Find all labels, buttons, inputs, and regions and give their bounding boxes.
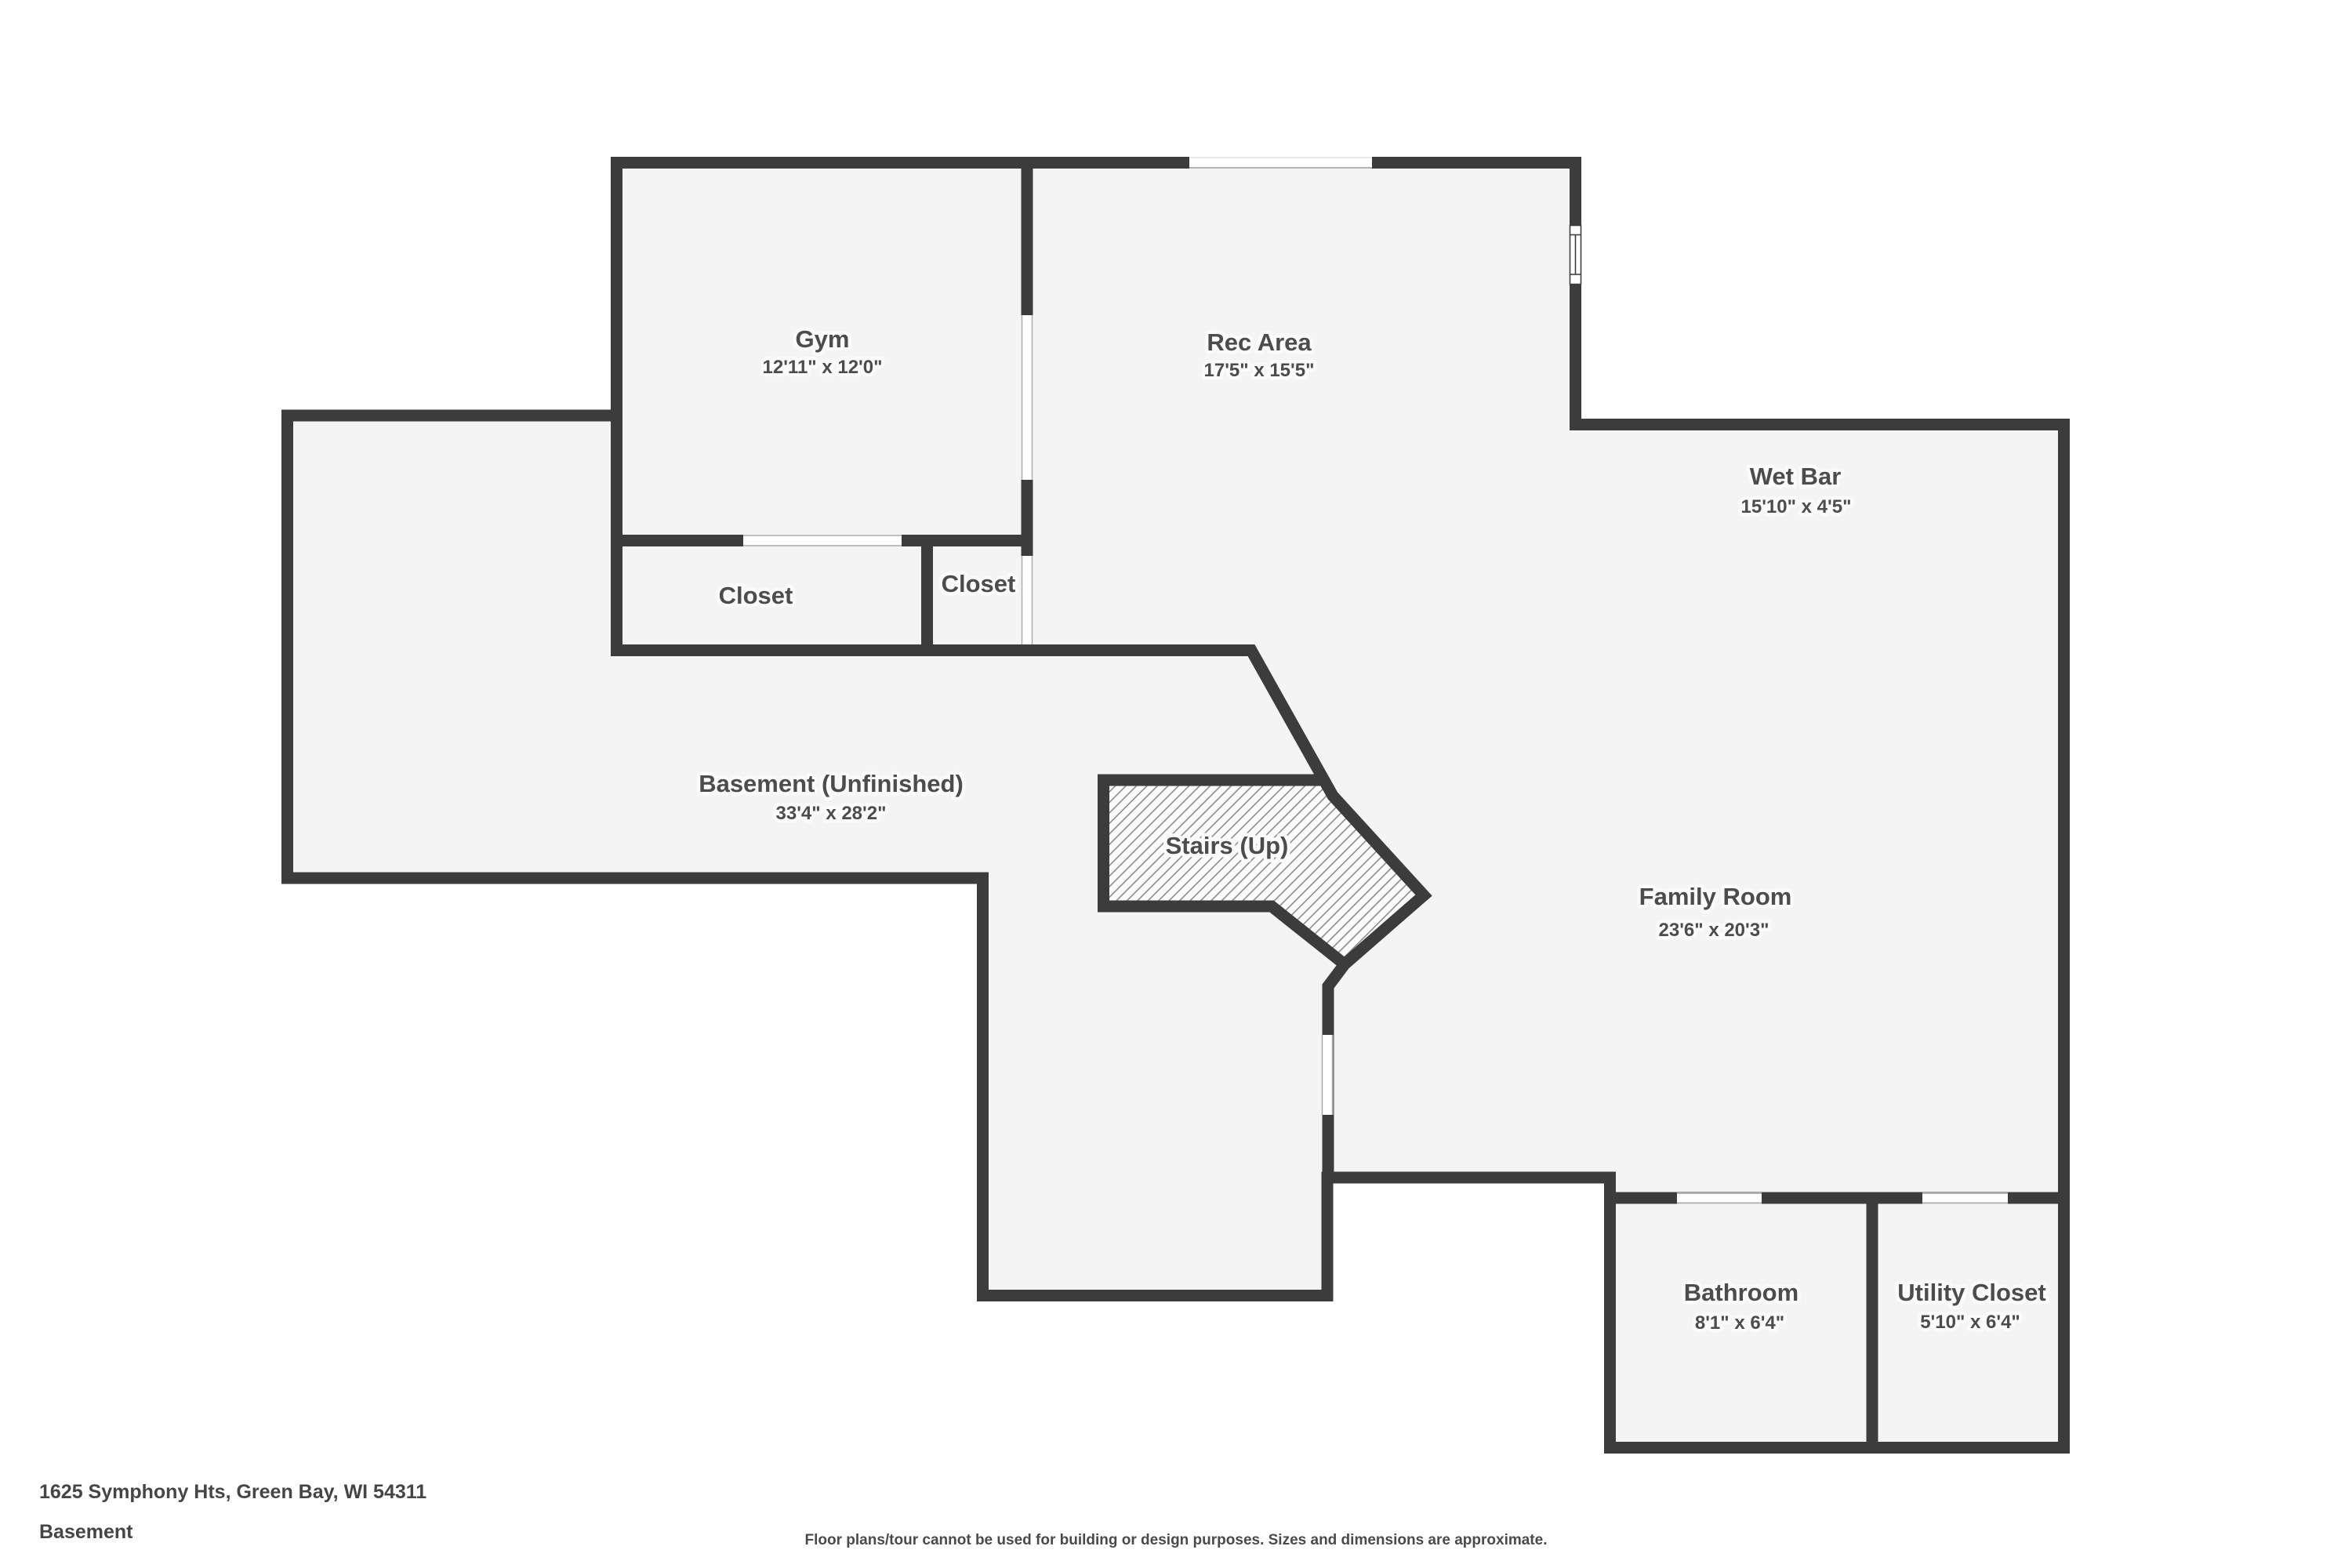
svg-text:Closet: Closet [942, 570, 1016, 597]
svg-text:Floor plans/tour cannot be use: Floor plans/tour cannot be used for buil… [805, 1532, 1548, 1548]
svg-text:Gym: Gym [796, 325, 850, 353]
svg-text:23'6" x 20'3": 23'6" x 20'3" [1659, 920, 1769, 941]
svg-text:17'5" x 15'5": 17'5" x 15'5" [1204, 360, 1315, 381]
svg-text:Basement: Basement [39, 1521, 133, 1543]
svg-text:Utility Closet: Utility Closet [1897, 1279, 2045, 1306]
svg-text:Bathroom: Bathroom [1684, 1279, 1798, 1306]
svg-text:Rec Area: Rec Area [1207, 328, 1312, 356]
svg-text:33'4" x 28'2": 33'4" x 28'2" [776, 803, 887, 824]
svg-text:Family Room: Family Room [1639, 883, 1792, 910]
svg-text:5'10" x 6'4": 5'10" x 6'4" [1920, 1312, 2020, 1333]
svg-text:8'1" x 6'4": 8'1" x 6'4" [1695, 1312, 1784, 1334]
svg-text:Wet Bar: Wet Bar [1750, 463, 1842, 490]
svg-text:1625 Symphony Hts, Green Bay,: 1625 Symphony Hts, Green Bay, WI 54311 [39, 1481, 426, 1503]
svg-text:Closet: Closet [719, 582, 793, 609]
svg-text:Stairs (Up): Stairs (Up) [1166, 832, 1289, 859]
svg-text:12'11" x 12'0": 12'11" x 12'0" [763, 357, 883, 378]
svg-text:Basement (Unfinished): Basement (Unfinished) [699, 770, 964, 797]
svg-text:15'10" x 4'5": 15'10" x 4'5" [1741, 496, 1852, 517]
